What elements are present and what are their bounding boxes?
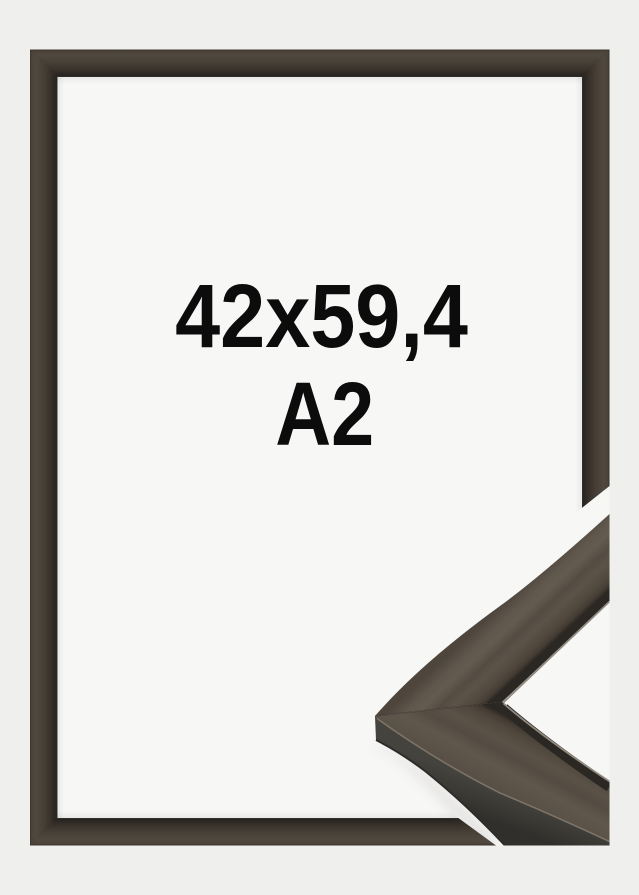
svg-text:A2: A2 [275,364,374,465]
svg-text:42x59,4: 42x59,4 [175,266,468,367]
